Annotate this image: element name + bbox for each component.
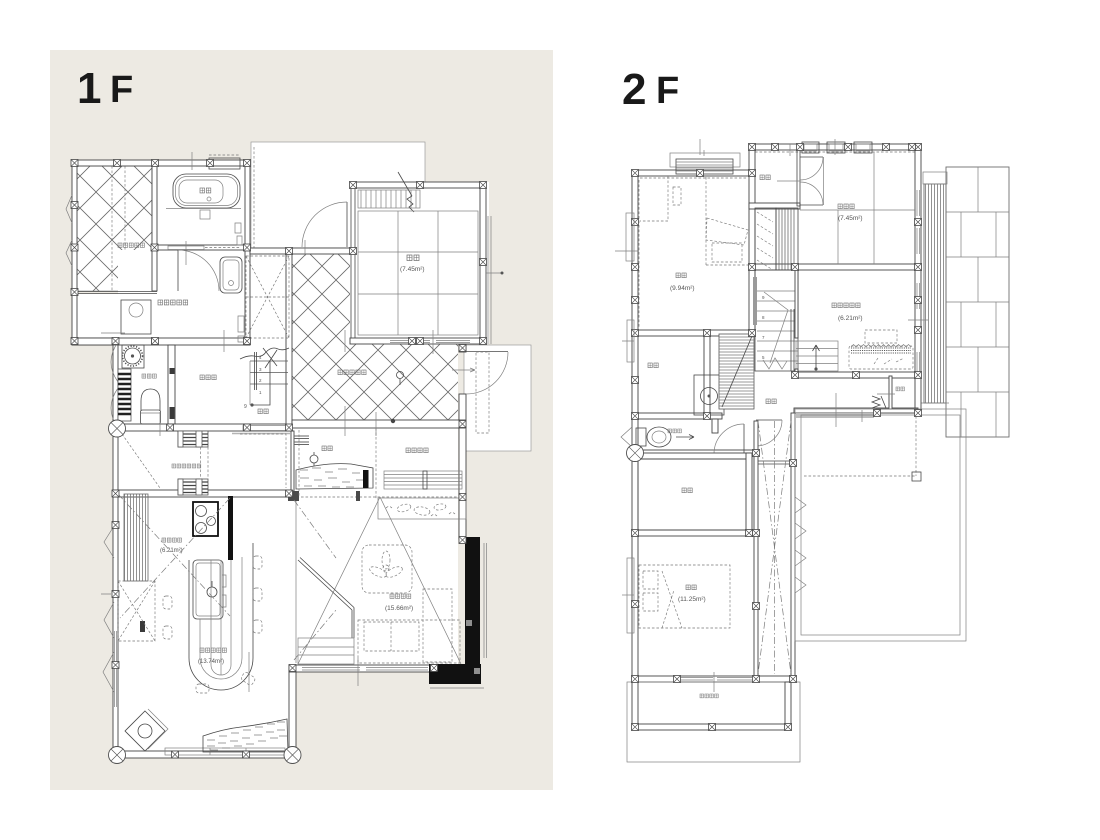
svg-text:(15.66m²): (15.66m²)	[385, 605, 413, 612]
svg-text:(6.21m²): (6.21m²)	[838, 315, 863, 322]
svg-text:1: 1	[77, 64, 101, 113]
svg-text:F: F	[656, 70, 679, 112]
svg-text:(7.45m²): (7.45m²)	[838, 215, 863, 222]
svg-text:(11.25m²): (11.25m²)	[678, 596, 706, 603]
svg-text:(6.21m²): (6.21m²)	[160, 548, 183, 554]
svg-text:(9.94m²): (9.94m²)	[670, 285, 695, 292]
svg-text:(7.45m²): (7.45m²)	[400, 266, 425, 273]
svg-text:F: F	[110, 69, 133, 111]
svg-text:(13.74m²): (13.74m²)	[198, 659, 224, 665]
svg-text:9: 9	[244, 404, 247, 410]
svg-text:2: 2	[622, 65, 646, 114]
